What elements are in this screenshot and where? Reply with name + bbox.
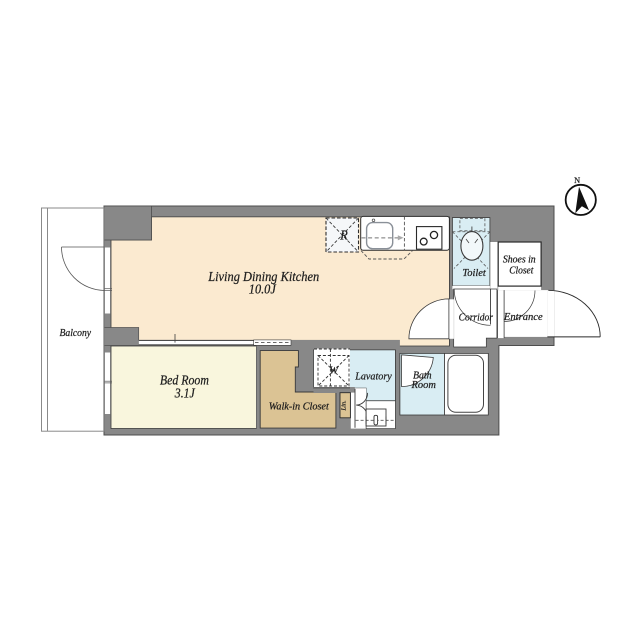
svg-text:Shoes in: Shoes in	[503, 255, 536, 266]
svg-text:Corridor: Corridor	[459, 311, 494, 323]
svg-text:Room: Room	[411, 379, 437, 391]
svg-text:W: W	[329, 366, 339, 377]
svg-text:Balcony: Balcony	[60, 327, 92, 339]
svg-text:10.0J: 10.0J	[249, 281, 277, 296]
svg-text:N: N	[574, 176, 580, 185]
svg-text:Walk-in Closet: Walk-in Closet	[269, 402, 330, 413]
svg-text:R: R	[339, 228, 348, 243]
svg-text:Lavatory: Lavatory	[354, 371, 392, 383]
svg-text:Entrance: Entrance	[503, 311, 543, 323]
svg-text:Lin.: Lin.	[340, 400, 347, 412]
svg-text:Closet: Closet	[509, 266, 534, 277]
svg-text:Toilet: Toilet	[462, 267, 486, 279]
svg-text:3.1J: 3.1J	[174, 385, 196, 400]
